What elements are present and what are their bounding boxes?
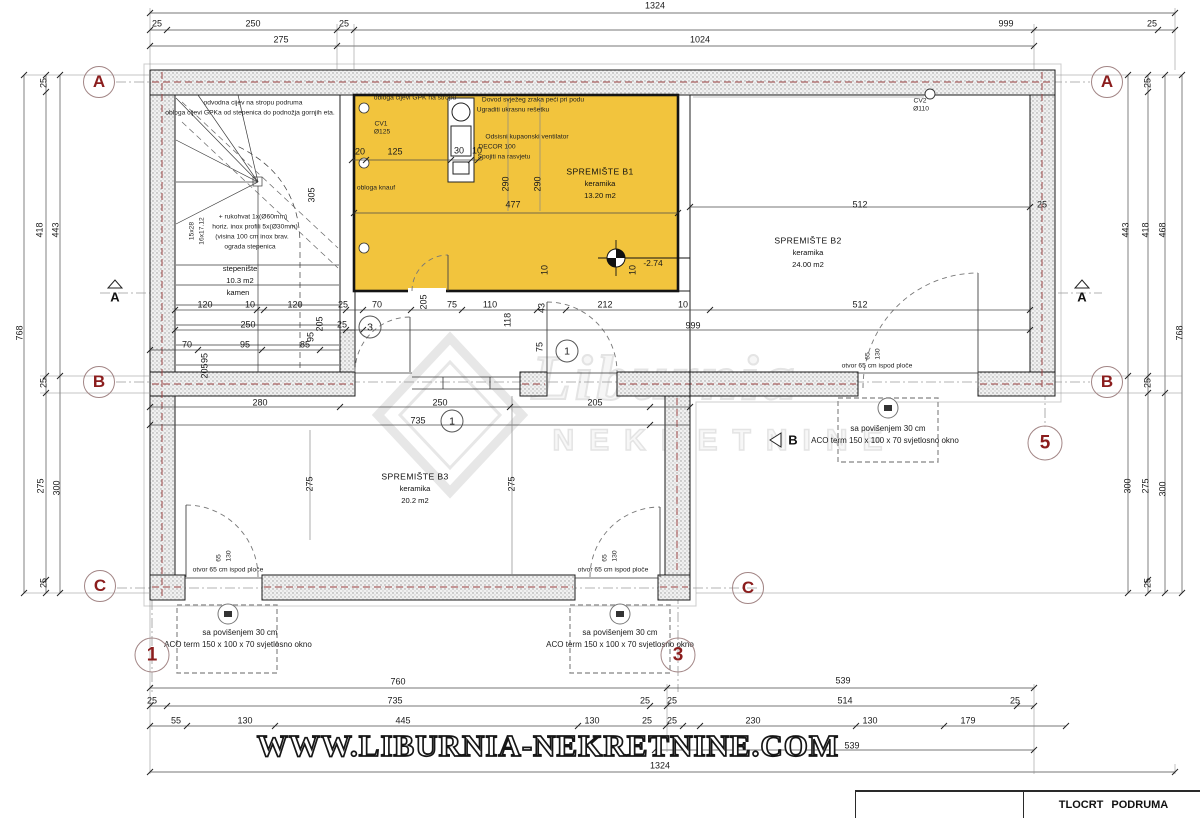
dim-label: 25 (1144, 578, 1153, 588)
floor-plan-canvas: Liburnia NEKRETNINE (0, 0, 1200, 818)
dim-label: 300 (1159, 481, 1168, 496)
dim-label: 25 (1144, 378, 1153, 388)
room-area-label: 20.2 m2 (401, 497, 428, 505)
dim-label: 205 (201, 363, 210, 378)
room-area-label: 24.00 m2 (792, 261, 824, 269)
dim-label: 999 (998, 20, 1013, 29)
dim-label: 250 (432, 399, 447, 408)
vent-label: Ø125 (374, 130, 390, 137)
dim-label: 130 (613, 550, 620, 561)
dim-label: 768 (1176, 325, 1185, 340)
annotation-label: odvodna cijev na stropu podruma (204, 101, 303, 108)
annotation-label: ACO term 150 x 100 x 70 svjetlosno okno (164, 641, 312, 649)
dim-label: 65 (603, 554, 610, 561)
dim-label: 75 (447, 301, 457, 310)
dim-label: 290 (502, 176, 511, 191)
dim-label: 250 (245, 20, 260, 29)
annotation-label: 15x28 (190, 222, 197, 240)
dim-label: 130 (227, 550, 234, 561)
dim-label: 735 (410, 417, 425, 426)
dim-label: 205 (316, 316, 325, 331)
grid-bubble-a-right: A (1091, 66, 1123, 98)
grid-bubble-a-left: A (83, 66, 115, 98)
annotation-label: Dovod svježeg zraka peći pri podu (482, 98, 584, 105)
vent-label: CV1 (374, 122, 387, 129)
dim-label: 25 (640, 697, 650, 706)
dim-label: 735 (387, 697, 402, 706)
dim-label: 1324 (645, 2, 665, 11)
dim-label: 65 (866, 352, 873, 359)
dim-label: 25 (1037, 201, 1047, 210)
dim-label: 445 (395, 717, 410, 726)
dim-label: 10 (629, 265, 638, 275)
annotation-label: DECOR 100 (478, 145, 515, 152)
dim-label: 230 (745, 717, 760, 726)
annotation-label: Odsisni kupaonski ventilator (485, 135, 568, 142)
dim-label: 30 (454, 147, 464, 156)
annotation-label: horiz. inox profili 5x(Ø30mm) (212, 225, 297, 232)
dim-label: 1024 (690, 36, 710, 45)
dim-label: 25 (1144, 78, 1153, 88)
annotation-label: otvor 65 cm ispod ploče (193, 568, 264, 575)
dim-label: 250 (240, 321, 255, 330)
room-finish-label: keramika (793, 249, 824, 257)
section-mark-a-left: A (110, 290, 119, 305)
dim-label: 768 (16, 325, 25, 340)
dim-label: 205 (587, 399, 602, 408)
grid-bubble-5: 5 (1028, 426, 1063, 461)
dim-label: 280 (252, 399, 267, 408)
room-finish-label: keramika (400, 485, 431, 493)
furnace-fixture (448, 98, 474, 182)
dim-label: 130 (237, 717, 252, 726)
grid-bubble-3: 3 (661, 638, 696, 673)
grid-bubble-c-left: C (84, 570, 116, 602)
dim-label: 512 (852, 201, 867, 210)
dim-label: 120 (197, 301, 212, 310)
dim-label: 25 (339, 20, 349, 29)
dim-label: 20 (355, 148, 365, 157)
dim-label: 275 (273, 36, 288, 45)
grid-bubble-1: 1 (135, 638, 170, 673)
annotation-label: + rukohvat 1x(Ø60mm) (219, 215, 288, 222)
dim-label: 25 (40, 378, 49, 388)
dim-label: 25 (667, 697, 677, 706)
dim-label: 290 (534, 176, 543, 191)
dim-label: 300 (1124, 478, 1133, 493)
dim-label: 418 (1142, 222, 1151, 237)
grid-bubble-b-left: B (83, 366, 115, 398)
annotation-label: otvor 65 cm ispod ploče (578, 568, 649, 575)
dim-label: 999 (685, 322, 700, 331)
dim-label: 25 (40, 578, 49, 588)
dim-label: 25 (338, 301, 348, 310)
vent-label: CV2 (913, 99, 926, 106)
dim-label: 212 (597, 301, 612, 310)
dim-label: 43 (538, 303, 547, 313)
door-number-1: 1 (556, 340, 579, 363)
dim-label: 65 (217, 554, 224, 561)
annotation-label: sa povišenjem 30 cm (850, 425, 925, 433)
floor-plan-drawing (0, 0, 1200, 818)
dim-label: 25 (667, 717, 677, 726)
dim-label: 275 (508, 476, 517, 491)
dim-label: 10 (245, 301, 255, 310)
row-b-windows (185, 373, 978, 578)
annotation-label: obloga cijevi GPK na stropu (374, 96, 457, 103)
dim-label: 70 (182, 341, 192, 350)
dim-label: 55 (171, 717, 181, 726)
dim-label: 275 (306, 476, 315, 491)
annotation-label: 16x17.12 (200, 217, 207, 245)
grid-bubble-c-right: C (732, 572, 764, 604)
section-mark-b: B (788, 433, 797, 448)
room-finish-label: kamen (227, 289, 250, 297)
dim-label: 110 (483, 301, 497, 310)
title-block: TLOCRT PODRUMA (855, 790, 1200, 818)
annotation-label: ACO term 150 x 100 x 70 svjetlosno okno (811, 437, 959, 445)
room-label: SPREMIŠTE B2 (774, 237, 841, 246)
dim-label: 25 (642, 717, 652, 726)
room-area-label: 10.3 m2 (226, 277, 253, 285)
dim-label: 95 (307, 332, 316, 342)
dim-label: 443 (52, 222, 61, 237)
watermark-url: WWW.LIBURNIA-NEKRETNINE.COM (257, 728, 839, 764)
dim-label: 275 (1142, 478, 1151, 493)
dim-label: 125 (387, 148, 402, 157)
drawing-title: TLOCRT PODRUMA (1031, 799, 1196, 811)
dim-label: 95 (240, 341, 250, 350)
vent-label: Ø110 (913, 107, 929, 114)
dim-label: 468 (1159, 222, 1168, 237)
annotation-label: obloga knauf (357, 186, 395, 193)
dim-label: 10 (541, 265, 550, 275)
dim-label: 75 (536, 342, 545, 352)
dim-label: 418 (36, 222, 45, 237)
dim-label: 539 (835, 677, 850, 686)
dim-label: 95 (201, 353, 210, 363)
room-area-label: 13.20 m2 (584, 192, 616, 200)
annotation-label: sa povišenjem 30 cm (582, 629, 657, 637)
dim-label: 25 (40, 78, 49, 88)
dim-label: 25 (1147, 20, 1157, 29)
room-finish-label: keramika (585, 180, 616, 188)
annotation-label: sa povišenjem 30 cm (202, 629, 277, 637)
room-label: SPREMIŠTE B1 (566, 168, 633, 177)
dim-label: 25 (1010, 697, 1020, 706)
dim-label: 275 (37, 478, 46, 493)
dim-label: 443 (1122, 222, 1131, 237)
annotation-label: obloga cijevi GPKa od stepenica do podno… (165, 111, 335, 118)
dim-label: 10 (678, 301, 688, 310)
dim-label: 512 (852, 301, 867, 310)
dim-label: 477 (505, 201, 520, 210)
dim-label: 205 (420, 294, 429, 309)
dim-label: 130 (862, 717, 877, 726)
section-mark-a-right: A (1077, 290, 1086, 305)
dim-label: 760 (390, 678, 405, 687)
room-label: SPREMIŠTE B3 (381, 473, 448, 482)
dim-label: 305 (308, 187, 317, 202)
room-label: stepenište (223, 265, 258, 273)
dim-label: 25 (337, 321, 347, 330)
dim-label: 300 (53, 480, 62, 495)
door-number-1: 1 (441, 410, 464, 433)
dim-label: 25 (147, 697, 157, 706)
annotation-label: Spojiti na rasvjetu (478, 155, 531, 162)
grid-bubble-b-right: B (1091, 366, 1123, 398)
dim-label: 539 (844, 742, 859, 751)
dim-label: 179 (960, 717, 975, 726)
title-block-divider (1023, 792, 1024, 818)
dim-label: 25 (152, 20, 162, 29)
dim-label: 130 (584, 717, 599, 726)
dim-label: 130 (876, 348, 883, 359)
dim-label: 514 (837, 697, 852, 706)
level-value-label: -2.74 (643, 259, 662, 268)
dim-label: 120 (287, 301, 302, 310)
annotation-label: otvor 65 cm ispod ploče (842, 364, 913, 371)
door-number-3: 3 (359, 316, 382, 339)
dim-label: 118 (504, 313, 513, 327)
annotation-label: Ugraditi ukrasnu rešetku (477, 108, 549, 115)
annotation-label: (visina 100 cm inox brav. (215, 235, 288, 242)
dim-label: 70 (372, 301, 382, 310)
annotation-label: ograda stepenica (224, 245, 275, 252)
